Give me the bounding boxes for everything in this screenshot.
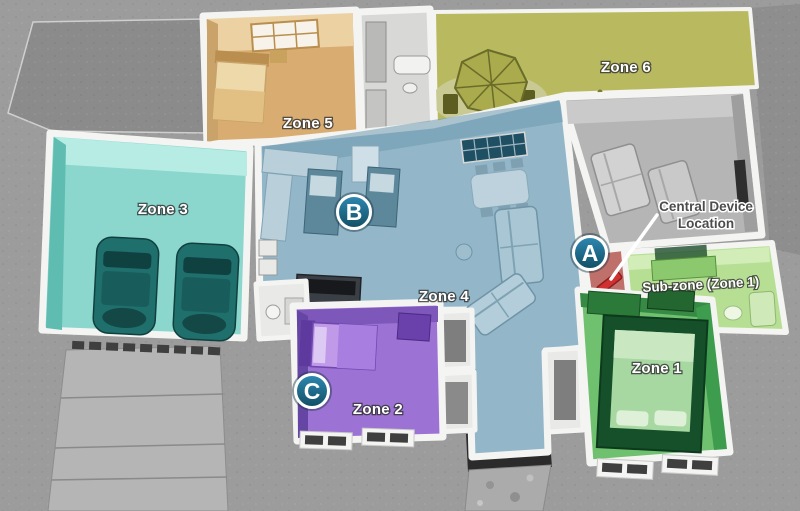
- zone-6-label: Zone 6: [601, 59, 651, 76]
- zone-3-room: [42, 133, 250, 355]
- shower-icon: [749, 291, 776, 327]
- zone-5-window: [251, 20, 319, 52]
- zone-2-bed-icon: [299, 320, 377, 370]
- car-icon: [172, 242, 239, 341]
- marker-c: C: [293, 372, 331, 410]
- bathtub-icon: [394, 56, 430, 74]
- marker-a-letter: A: [582, 240, 599, 266]
- zone-5-room: [203, 10, 360, 144]
- toilet-icon: [403, 83, 417, 93]
- zone-5-bed-icon: [211, 50, 270, 123]
- marker-b-letter: B: [346, 199, 363, 225]
- driveway: [48, 346, 228, 511]
- toilet-icon: [724, 306, 742, 320]
- floorplan-diagram: Zone 3 Zone 5 Zone 6 Zone 4 Zone 2 Zone …: [0, 0, 800, 511]
- marker-c-letter: C: [304, 378, 321, 404]
- zone-2-label: Zone 2: [353, 401, 403, 418]
- zone-4-label: Zone 4: [419, 288, 469, 305]
- marker-b: B: [335, 193, 373, 231]
- marker-a: A: [571, 234, 609, 272]
- coffee-table-icon: [456, 244, 472, 260]
- callout-line-2: Location: [678, 216, 734, 231]
- dresser-icon: [397, 313, 431, 341]
- hall-closet: [366, 22, 386, 82]
- zone-1-bed-icon: [597, 315, 708, 452]
- sink-icon: [266, 305, 280, 319]
- dresser-icon: [587, 291, 640, 317]
- zone-5-label: Zone 5: [283, 115, 333, 132]
- callout-line-1: Central Device: [659, 199, 753, 214]
- zone-5-nightstand: [270, 50, 287, 63]
- closet-door: [554, 360, 576, 420]
- zone-1-label: Zone 1: [632, 360, 682, 377]
- zone-1-room: [578, 288, 730, 479]
- car-icon: [92, 236, 159, 335]
- zone-3-label: Zone 3: [138, 201, 188, 218]
- floorplan-svg: Zone 3 Zone 5 Zone 6 Zone 4 Zone 2 Zone …: [0, 0, 800, 511]
- hall-bathroom: [358, 9, 434, 140]
- bathroom-vanity-icon: [651, 244, 717, 280]
- hall-closet: [366, 90, 386, 132]
